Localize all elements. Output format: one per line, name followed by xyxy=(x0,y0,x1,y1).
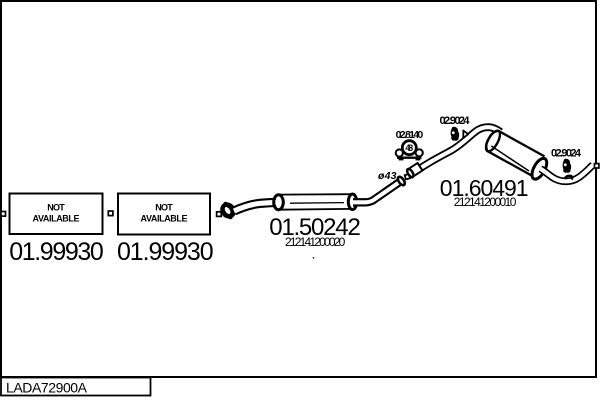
svg-text:AVAILABLE: AVAILABLE xyxy=(141,213,188,223)
svg-text:212141200010: 212141200010 xyxy=(454,195,517,209)
svg-text:01.99930: 01.99930 xyxy=(9,238,104,266)
svg-text:ø43: ø43 xyxy=(378,170,397,182)
svg-text:02.8140: 02.8140 xyxy=(396,129,424,141)
svg-text:AVAILABLE: AVAILABLE xyxy=(33,213,80,223)
svg-text:02.9024: 02.9024 xyxy=(440,115,471,127)
svg-text:212141200020: 212141200020 xyxy=(285,235,346,249)
svg-text:48: 48 xyxy=(405,143,413,153)
svg-text:LADA72900A: LADA72900A xyxy=(6,380,88,396)
svg-text:02.9024: 02.9024 xyxy=(551,147,582,159)
svg-text:01.99930: 01.99930 xyxy=(117,238,214,266)
svg-text:NOT: NOT xyxy=(155,202,173,212)
svg-text:NOT: NOT xyxy=(47,202,65,212)
